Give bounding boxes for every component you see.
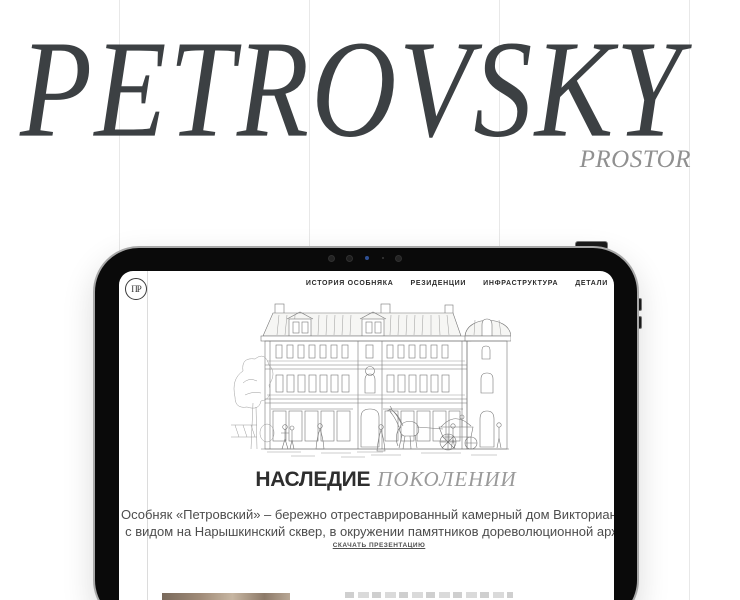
sensor-dot-icon [365, 256, 369, 260]
hero-title: PETROVSKY [20, 20, 684, 159]
nav-link-residences[interactable]: РЕЗИДЕНЦИИ [410, 280, 466, 287]
mansion-drawing [231, 299, 511, 461]
tablet-device: ПР ИСТОРИЯ ОСОБНЯКА РЕЗИДЕНЦИИ ИНФРАСТРУ… [93, 246, 639, 600]
paragraph-line: Особняк «Петровский» – бережно отреставр… [121, 506, 614, 523]
main-navigation: ИСТОРИЯ ОСОБНЯКА РЕЗИДЕНЦИИ ИНФРАСТРУКТУ… [306, 280, 608, 287]
logo-monogram: ПР [131, 284, 141, 294]
download-link-row: СКАЧАТЬ ПРЕЗЕНТАЦИЮ [119, 534, 614, 552]
section-heading: НАСЛЕДИЕ ПОКОЛЕНИИ [119, 467, 614, 492]
heading-accent: ПОКОЛЕНИИ [377, 467, 516, 492]
hero-subtitle: PROSTOR [580, 146, 691, 174]
next-section-heading-cut [345, 592, 513, 598]
nav-link-details[interactable]: ДЕТАЛИ [575, 280, 608, 287]
nav-link-infrastructure[interactable]: ИНФРАСТРУКТУРА [483, 280, 558, 287]
nav-link-history[interactable]: ИСТОРИЯ ОСОБНЯКА [306, 280, 394, 287]
page: PETROVSKY PROSTOR ПР ИСТОРИЯ ОСОБНЯКА РЕ… [0, 0, 740, 600]
site-logo[interactable]: ПР [125, 278, 147, 300]
download-presentation-link[interactable]: СКАЧАТЬ ПРЕЗЕНТАЦИЮ [333, 542, 426, 549]
mansion-illustration [231, 299, 511, 461]
background-grid-line [689, 0, 690, 600]
microphone-dot-icon [382, 257, 384, 259]
heading-main: НАСЛЕДИЕ [255, 468, 370, 492]
front-camera-cluster [328, 253, 402, 263]
tablet-screen: ПР ИСТОРИЯ ОСОБНЯКА РЕЗИДЕНЦИИ ИНФРАСТРУ… [119, 271, 614, 600]
next-section-photo [162, 593, 290, 600]
camera-icon [395, 255, 402, 262]
camera-icon [328, 255, 335, 262]
camera-icon [346, 255, 353, 262]
